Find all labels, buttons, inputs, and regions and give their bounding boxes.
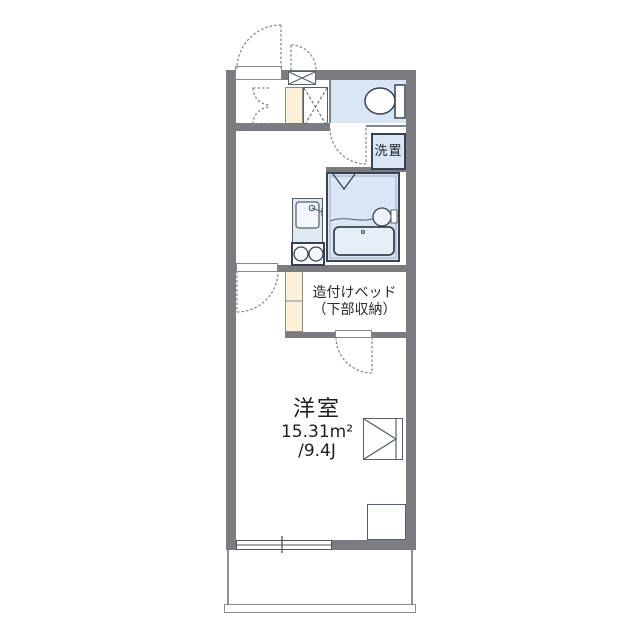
partition-bed-bottom-left — [285, 332, 335, 338]
washing-machine-label: 洗置 — [371, 135, 406, 168]
room-area: 15.31m² — [257, 423, 377, 442]
built-in-bed-label-line1: 造付けベッド — [303, 285, 406, 302]
toilet-door-arc — [330, 128, 366, 164]
room-name: 洋室 — [257, 397, 377, 423]
hall-door-leaf — [236, 263, 278, 272]
bedside-closet — [285, 271, 303, 332]
stove-box — [291, 242, 325, 266]
meter-door-arc — [291, 45, 316, 70]
entrance-door-leaf — [235, 66, 282, 80]
partition-bed-bottom-right — [372, 332, 406, 338]
balcony-left-rail — [227, 550, 229, 605]
main-room-label: 洋室 15.31m² /9.4J — [257, 397, 377, 461]
closet-door-arc-top — [253, 88, 270, 105]
meter-box — [288, 71, 316, 85]
hall-door-arc — [237, 271, 278, 312]
wall-bottom-right — [332, 540, 416, 550]
built-in-bed-label: 造付けベッド （下部収納） — [303, 285, 406, 319]
bed-door-arc — [336, 337, 372, 373]
closet-door-arc-bottom — [253, 107, 270, 124]
partition-room-top — [278, 265, 406, 272]
fridge-space-box — [367, 504, 406, 540]
floor-plan: 洗置 造付けベッド （下部収納） 洋室 15.31m² /9.4J — [0, 0, 640, 640]
pipe-space-box — [303, 87, 328, 127]
wall-right — [406, 70, 416, 550]
entrance-door-arc — [237, 25, 281, 69]
entrance-closet — [285, 87, 303, 127]
bed-door-leaf — [335, 330, 372, 338]
built-in-bed-label-line2: （下部収納） — [303, 302, 406, 319]
bathroom — [326, 172, 400, 262]
wall-bottom-left-stub — [226, 540, 236, 550]
sliding-window — [236, 540, 332, 550]
closet-doors-open-leaves — [253, 88, 270, 124]
toilet-room — [330, 80, 406, 123]
partition-hall — [236, 123, 330, 131]
room-tatami: /9.4J — [257, 442, 377, 461]
balcony-right-rail — [411, 550, 413, 605]
wall-left — [226, 70, 236, 550]
balcony-front-rail — [224, 604, 416, 613]
